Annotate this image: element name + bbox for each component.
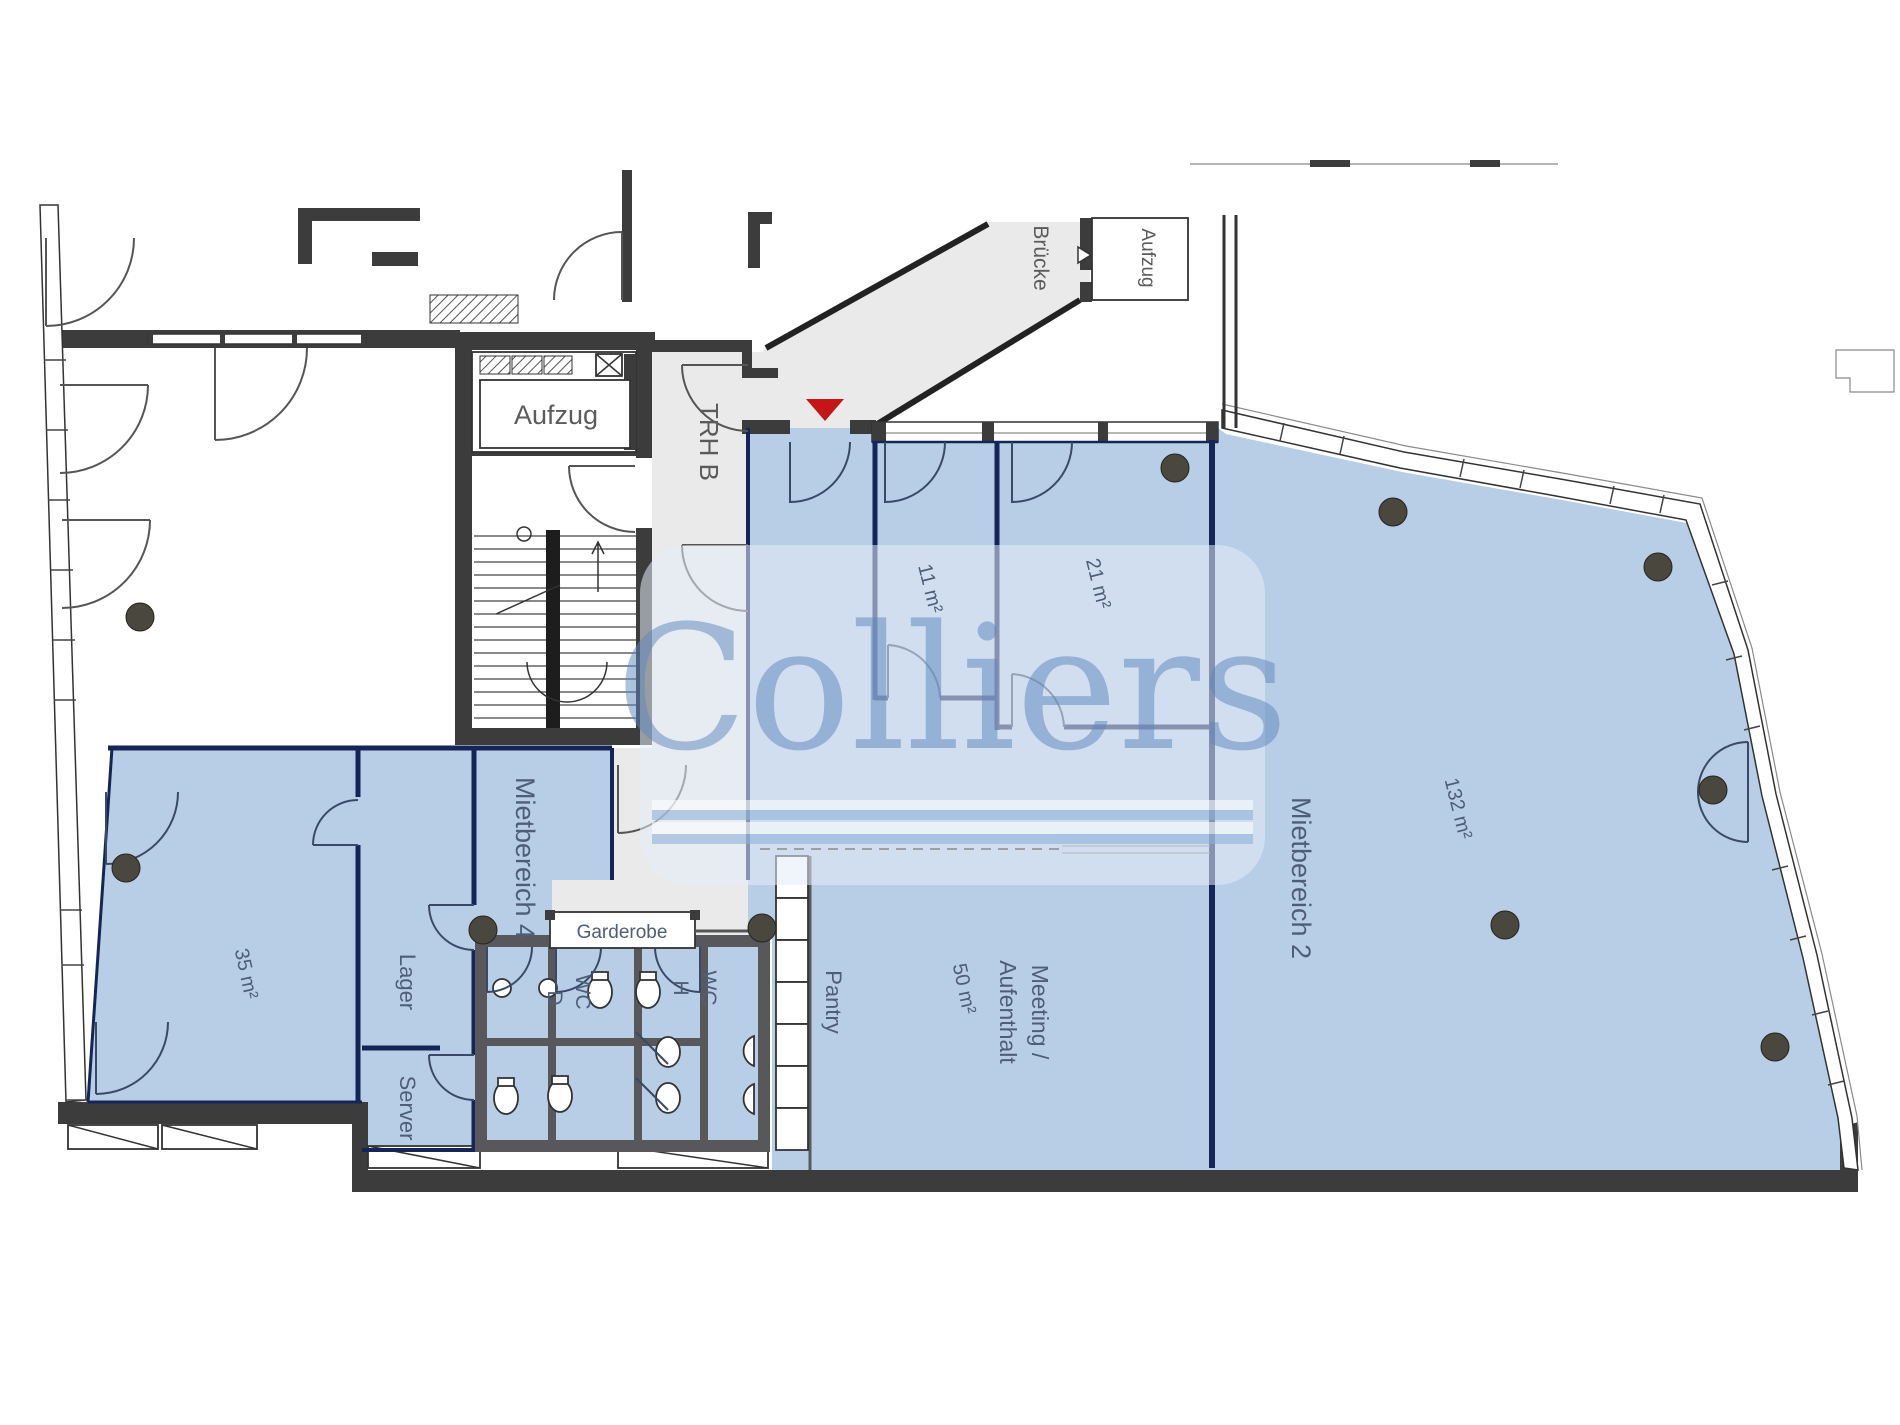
wall-stub-upper	[622, 170, 632, 302]
wall-stub-hook-side	[748, 212, 760, 268]
stair-direction-arrow	[592, 542, 604, 592]
wall-stub-left	[298, 208, 312, 264]
wall-corridor-top	[652, 340, 752, 352]
label-elevator-core: Aufzug	[514, 400, 598, 430]
door-stub-upper	[554, 232, 622, 300]
watermark-stripe	[652, 810, 1253, 820]
wall-core-left	[455, 332, 472, 745]
watermark: Colliers	[616, 545, 1288, 885]
upper-facade-seg	[1310, 160, 1350, 167]
upper-facade-seg	[1470, 160, 1500, 167]
window-jamb	[1206, 422, 1218, 442]
wall-step-block	[372, 252, 418, 266]
label-wc-d: D	[543, 990, 566, 1005]
door-facade-white-2	[62, 520, 150, 608]
window-jamb	[872, 422, 886, 442]
column	[1161, 454, 1189, 482]
label-cloakroom: Garderobe	[577, 922, 668, 943]
column	[1761, 1033, 1789, 1061]
exterior-notch	[1836, 350, 1894, 392]
label-stairwell: TRH B	[694, 403, 724, 481]
column	[1644, 553, 1672, 581]
pantry-counter	[776, 856, 808, 1150]
column	[748, 914, 776, 942]
meter-cabinet	[480, 356, 510, 374]
window-jamb	[220, 332, 225, 346]
wall-core-right-upper	[636, 350, 652, 458]
column	[126, 603, 154, 631]
label-bridge: Brücke	[1029, 225, 1052, 290]
stair-curved-rail	[527, 662, 607, 702]
floorplan-svg: Colliers Aufzug TRH B Brücke Aufzug 11 m…	[0, 0, 1900, 1425]
column	[1699, 776, 1727, 804]
stair-stringer	[546, 530, 560, 728]
window-jamb	[1098, 422, 1108, 442]
label-storage: Lager	[395, 954, 420, 1010]
label-pantry: Pantry	[821, 970, 846, 1034]
window-top-left	[148, 334, 366, 344]
window-band-top	[872, 422, 1218, 442]
window-jamb	[982, 422, 994, 442]
wall-stub-left-horizontal	[310, 208, 420, 221]
label-rental-area-2: Mietbereich 2	[1286, 797, 1316, 959]
watermark-stripe	[652, 822, 1253, 834]
wall-bottom-left	[58, 1102, 365, 1124]
column	[1491, 911, 1519, 939]
window-jamb	[292, 332, 297, 346]
stairwell	[474, 527, 636, 728]
column	[112, 854, 140, 882]
watermark-stripe	[652, 800, 1253, 810]
wall-bridge-elevator-left-a	[1080, 218, 1092, 270]
meter-cabinet-upper	[430, 295, 518, 323]
label-meeting-line2: Aufenthalt	[995, 960, 1021, 1064]
floorplan-page: Colliers Aufzug TRH B Brücke Aufzug 11 m…	[0, 0, 1900, 1425]
label-server: Server	[395, 1076, 420, 1141]
door-anteroom	[569, 466, 635, 532]
column	[469, 916, 497, 944]
wall-bridge-elevator-left-b	[1080, 282, 1092, 302]
label-meeting-line1: Meeting /	[1027, 965, 1053, 1060]
label-wc-d-wc: WC	[571, 975, 594, 1010]
wall-bottom-main	[352, 1170, 1857, 1192]
label-wc-h-wc: WC	[697, 971, 720, 1006]
label-rental-area-4: Mietbereich 4	[510, 777, 540, 939]
door-white-room-top	[215, 348, 307, 440]
shaft-x-box	[596, 354, 622, 376]
window-jamb	[148, 332, 153, 346]
meter-cabinet	[512, 356, 542, 374]
wc-block	[475, 935, 770, 1152]
door-facade-white-1	[60, 385, 148, 473]
column	[1379, 498, 1407, 526]
stair-post	[517, 527, 531, 541]
label-wc-h: H	[669, 980, 692, 995]
watermark-brand: Colliers	[616, 588, 1288, 789]
watermark-stripe	[652, 834, 1253, 844]
meter-cabinet	[544, 356, 572, 374]
wall-vestibule-top	[742, 368, 778, 378]
window-jamb	[361, 332, 366, 346]
wall-core-top	[455, 332, 655, 350]
label-elevator-bridge: Aufzug	[1137, 228, 1158, 287]
